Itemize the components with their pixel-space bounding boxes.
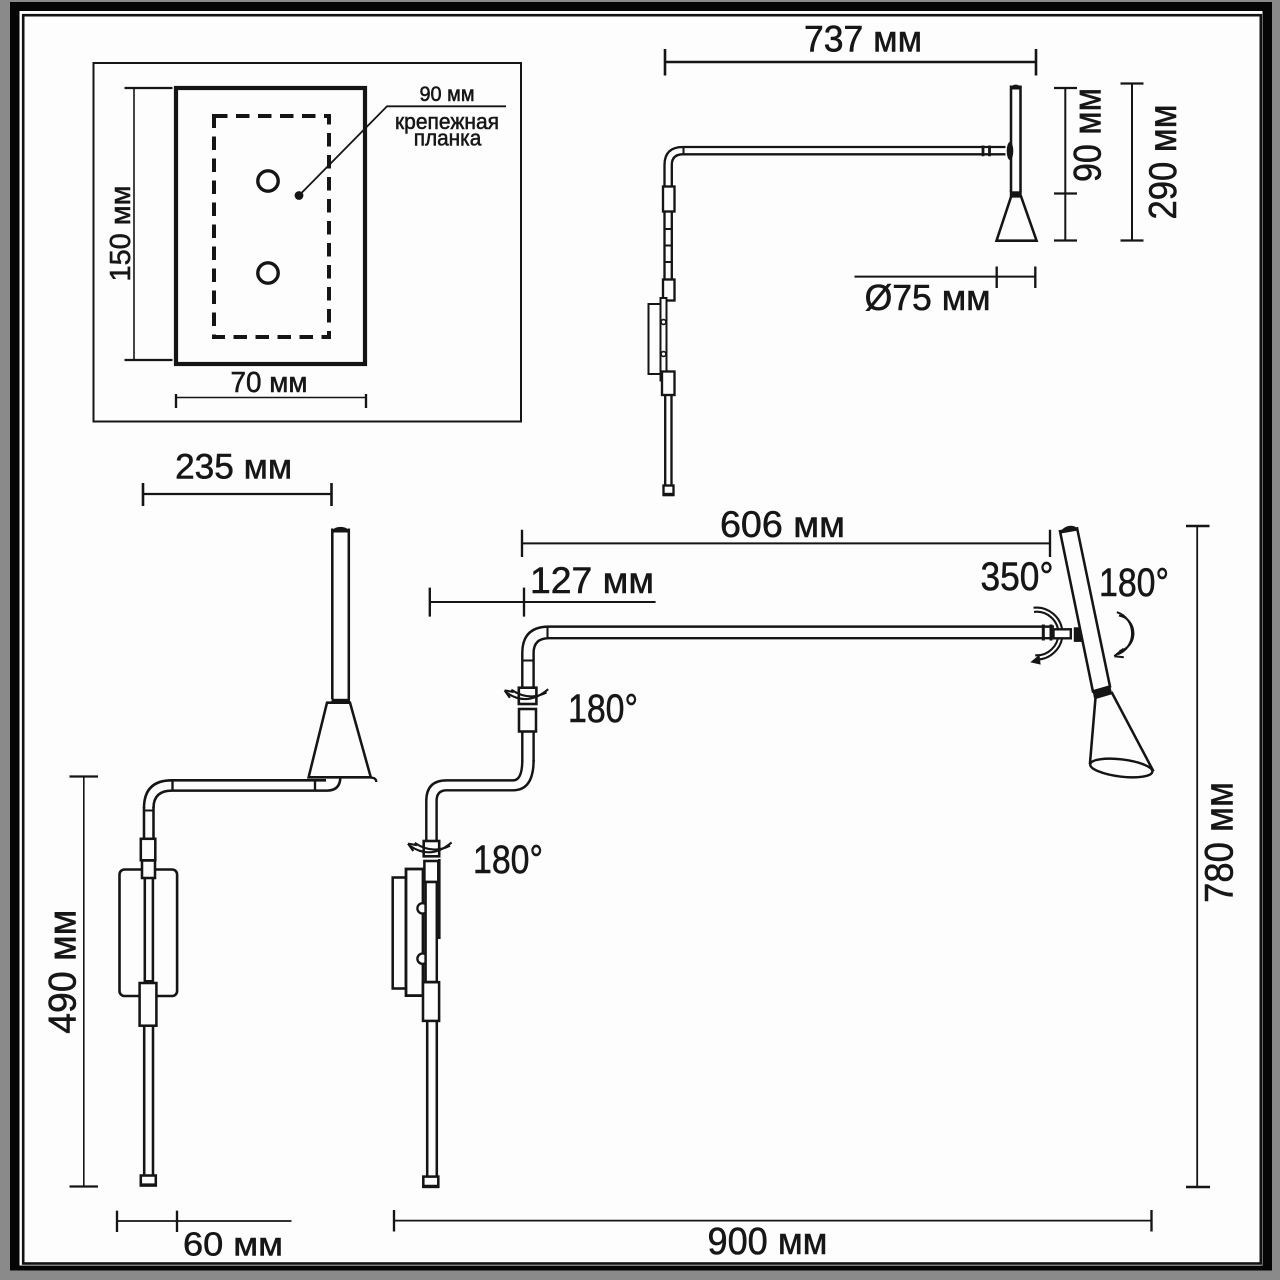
- svg-text:780 мм: 780 мм: [1198, 782, 1242, 903]
- svg-text:606 мм: 606 мм: [720, 504, 845, 545]
- svg-text:90 мм: 90 мм: [1067, 88, 1110, 182]
- svg-text:150 мм: 150 мм: [105, 186, 137, 282]
- svg-text:90 мм: 90 мм: [420, 83, 475, 106]
- svg-text:350°: 350°: [981, 555, 1054, 599]
- svg-text:180°: 180°: [473, 838, 543, 882]
- svg-text:Ø75 мм: Ø75 мм: [865, 277, 991, 318]
- svg-text:290 мм: 290 мм: [1142, 105, 1185, 220]
- svg-text:900 мм: 900 мм: [708, 1221, 828, 1263]
- svg-text:70 мм: 70 мм: [231, 367, 308, 399]
- svg-text:127 мм: 127 мм: [530, 560, 654, 601]
- svg-text:60 мм: 60 мм: [183, 1226, 283, 1263]
- svg-text:180°: 180°: [568, 687, 638, 731]
- svg-text:планка: планка: [414, 126, 482, 151]
- svg-text:180°: 180°: [1099, 561, 1169, 605]
- svg-text:235 мм: 235 мм: [175, 448, 292, 487]
- svg-text:737 мм: 737 мм: [804, 19, 922, 60]
- svg-text:490 мм: 490 мм: [42, 910, 85, 1034]
